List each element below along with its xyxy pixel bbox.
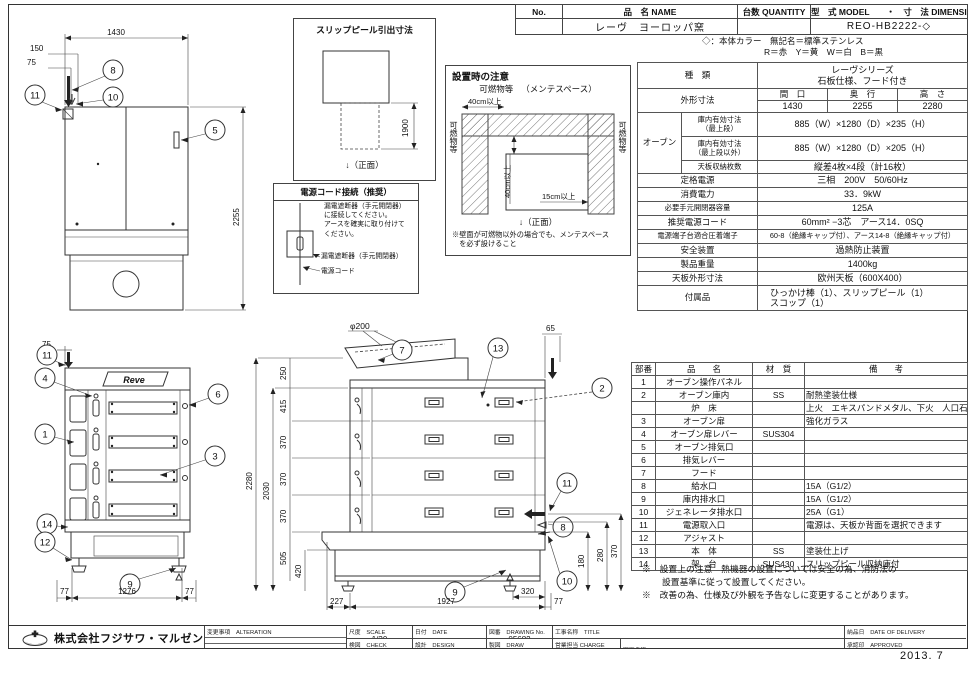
parts-cell-no: 3	[632, 415, 656, 428]
company-name: 株式会社フジサワ・マルゼン	[54, 630, 204, 646]
spec-accessories-v1: ひっかけ棒（1）、スリップピール（1）	[770, 288, 966, 298]
parts-row: 8給水口15A（G1/2）	[632, 480, 968, 493]
side-dim-420: 420	[294, 564, 303, 578]
parts-cell-name: アジャスト	[656, 532, 753, 545]
header-qty-label: 台数 QUANTITY	[738, 5, 811, 19]
parts-header-no: 部番	[632, 363, 656, 376]
spec-height-value: 2280	[898, 101, 968, 113]
side-dim-227: 227	[330, 597, 344, 606]
slip-peel-drawing: 1900	[294, 37, 437, 163]
drawing-name-label: 図面名称 DRAWING CORD	[621, 644, 698, 649]
parts-row: 1オーブン操作パネル	[632, 376, 968, 389]
front-callout-4: 4	[42, 374, 47, 385]
side-dim-r280: 280	[596, 548, 605, 562]
side-dim-370a: 370	[279, 435, 288, 449]
spec-accessories-v2: スコップ（1）	[770, 298, 966, 308]
parts-cell-material	[753, 506, 805, 519]
footnote-line2: 設置基準に従って設置してください。	[642, 576, 914, 589]
plan-dim-75: 75	[27, 58, 36, 67]
side-callout-13: 13	[493, 344, 504, 355]
delivery-cell: 納品日 DATE OF DELIVERY	[844, 626, 966, 638]
front-callout-1: 1	[42, 430, 47, 441]
power-t3: アースを確実に取り付けて	[324, 220, 406, 229]
spec-oven-label: オーブン	[638, 113, 682, 174]
spec-terminal-label: 電源端子台適合圧着端子	[638, 230, 758, 244]
parts-cell-name: 排気レバー	[656, 454, 753, 467]
spec-kind-label: 種 類	[638, 63, 758, 89]
side-dim-r370: 370	[610, 544, 619, 558]
parts-cell-no: 10	[632, 506, 656, 519]
spec-traysize-label: 天板外形寸法	[638, 272, 758, 286]
install-right-label: 可燃物等	[617, 121, 628, 153]
parts-cell-material	[753, 480, 805, 493]
approved-label: 承認印 APPROVED	[845, 639, 966, 649]
parts-row: 9庫内排水口15A（G1/2）	[632, 493, 968, 506]
parts-header-material: 材 質	[753, 363, 805, 376]
install-fn1: ※壁面が可燃物以外の場合でも、メンテスペース	[452, 230, 609, 239]
power-t2: に接続してください。	[324, 211, 406, 220]
parts-cell-note	[805, 454, 968, 467]
spec-depth-value: 2255	[828, 101, 898, 113]
header-name-label: 品 名 NAME	[563, 5, 738, 19]
slip-peel-dim: 1900	[401, 119, 410, 137]
spec-height-header: 高 さ	[898, 89, 968, 101]
parts-cell-note: 強化ガラス	[805, 415, 968, 428]
company-logo-icon	[20, 629, 50, 647]
install-front-label: ↓（正面）	[446, 216, 630, 228]
side-dim-250: 250	[279, 366, 288, 380]
color-legend-line1: ◇：本体カラー 無記名＝標準ステンレス	[702, 36, 883, 47]
side-callout-11: 11	[562, 479, 572, 490]
header-no-label: No.	[516, 5, 563, 19]
side-dim-370b: 370	[279, 472, 288, 486]
parts-table: 部番 品 名 材 質 備 考 1オーブン操作パネル2オーブン庫内SS耐熱塗装仕様…	[631, 362, 968, 571]
parts-cell-material	[753, 454, 805, 467]
side-dim-phi200: φ200	[350, 321, 370, 331]
draw-label: 製図 DRAW	[487, 639, 552, 649]
parts-cell-note: 25A（G1）	[805, 506, 968, 519]
front-view: 75 Reve 11 4	[8, 330, 238, 630]
parts-cell-material	[753, 441, 805, 454]
parts-cell-material	[753, 467, 805, 480]
install-top-clearance: 40cm以上	[468, 97, 502, 106]
parts-cell-name: フード	[656, 467, 753, 480]
parts-cell-note: 15A（G1/2）	[805, 493, 968, 506]
parts-cell-no: 1	[632, 376, 656, 389]
draw-cell: 製図 DRAW	[486, 638, 552, 649]
install-left-label: 可燃物等	[448, 121, 459, 153]
parts-cell-name: 炉 床	[656, 402, 753, 415]
footnote-line3: ※ 改善の為、仕様及び外観を予告なしに変更することがあります。	[642, 589, 914, 602]
parts-row: 6排気レバー	[632, 454, 968, 467]
parts-cell-no: 9	[632, 493, 656, 506]
spec-width-value: 1430	[758, 101, 828, 113]
parts-cell-material: SS	[753, 545, 805, 558]
plan-callout-10: 10	[108, 93, 119, 104]
slip-peel-front-label: ↓（正面）	[294, 159, 435, 171]
plan-dim-150: 150	[30, 44, 44, 53]
plan-callout-8: 8	[110, 66, 115, 77]
parts-cell-name: 庫内排水口	[656, 493, 753, 506]
parts-cell-name: オーブン扉	[656, 415, 753, 428]
parts-cell-material	[753, 415, 805, 428]
spec-power-label: 定格電源	[638, 174, 758, 188]
spec-kind-v1: レーヴシリーズ	[759, 65, 966, 75]
header-name-value: レーヴ ヨーロッパ窯	[563, 19, 738, 35]
front-callout-12: 12	[40, 538, 51, 549]
parts-cell-name: オーブン操作パネル	[656, 376, 753, 389]
spec-breaker-label: 必要手元開閉器容量	[638, 202, 758, 216]
spec-consumption-label: 消費電力	[638, 188, 758, 202]
parts-cell-note	[805, 428, 968, 441]
parts-cell-no: 13	[632, 545, 656, 558]
spec-power-value: 三相 200V 50/60Hz	[758, 174, 968, 188]
alteration-label: 変更事項 ALTERATION	[205, 626, 346, 636]
parts-cell-no: 7	[632, 467, 656, 480]
side-callout-7: 7	[399, 346, 404, 357]
footnote-line1: ※ 設置上の注意 熱機器の設置については安全の為、消防法の	[642, 563, 914, 576]
slip-peel-title: スリップピール引出寸法	[294, 19, 435, 36]
parts-row: 2オーブン庫内SS耐熱塗装仕様	[632, 389, 968, 402]
front-callout-6: 6	[215, 390, 220, 401]
parts-cell-material	[753, 493, 805, 506]
parts-cell-no	[632, 402, 656, 415]
header-model-value: REO-HB2222-◇	[811, 19, 968, 35]
install-drawing: 40cm以上 40cm以上 15cm以上	[446, 94, 630, 216]
drawing-sheet: No. 品 名 NAME 台数 QUANTITY 型 式 MODEL ・ 寸 法…	[0, 0, 975, 692]
color-legend-line2: R＝赤 Y＝黄 W＝白 B＝黒	[702, 47, 883, 58]
parts-cell-name: 本 体	[656, 545, 753, 558]
side-dim-1927: 1927	[437, 597, 455, 606]
spec-accessories-label: 付属品	[638, 286, 758, 311]
power-breaker-label: 漏電遮断器（手元開閉器）	[321, 250, 403, 260]
parts-cell-note	[805, 376, 968, 389]
parts-cell-name: オーブン庫内	[656, 389, 753, 402]
plan-callout-11: 11	[30, 91, 40, 102]
parts-cell-no: 8	[632, 480, 656, 493]
drawing-name-cell: 図面名称 DRAWING CORD レーヴ ヨーロッパ窯	[620, 638, 844, 649]
header-table: No. 品 名 NAME 台数 QUANTITY 型 式 MODEL ・ 寸 法…	[515, 4, 968, 35]
spec-inner1-l2: （最上段）	[683, 125, 756, 133]
parts-cell-note: 電源は、天板か背面を選択できます	[805, 519, 968, 532]
spec-inner1-label: 庫内有効寸法 （最上段）	[682, 113, 758, 137]
design-label: 設計 DESIGN	[413, 639, 486, 649]
parts-cell-note	[805, 532, 968, 545]
spec-trays-label: 天板収納枚数	[682, 161, 758, 174]
check-cell: 検図 CHECK	[346, 638, 412, 649]
front-logo: Reve	[123, 375, 145, 385]
parts-cell-no: 5	[632, 441, 656, 454]
scale-cell: 尺度 SCALE 1/30	[346, 626, 412, 638]
front-callout-14: 14	[42, 520, 53, 531]
spec-inner2-l2: （最上段以外）	[683, 149, 756, 157]
parts-cell-no: 4	[632, 428, 656, 441]
side-dim-65: 65	[546, 324, 555, 333]
spec-kind-value: レーヴシリーズ 石板仕様、フード付き	[758, 63, 968, 89]
parts-cell-name: ジェネレータ排水口	[656, 506, 753, 519]
parts-row: 7フード	[632, 467, 968, 480]
date-stamp: 2013. 7	[900, 650, 944, 662]
parts-header-name: 品 名	[656, 363, 753, 376]
parts-row: 11電源取入口電源は、天板か背面を選択できます	[632, 519, 968, 532]
side-dim-2030: 2030	[262, 482, 271, 500]
company-logo: 株式会社フジサワ・マルゼン	[20, 629, 204, 647]
parts-cell-note: 耐熱塗装仕様	[805, 389, 968, 402]
side-view: φ200 22	[230, 318, 632, 652]
side-dim-370c: 370	[279, 509, 288, 523]
design-cell: 設計 DESIGN	[412, 638, 486, 649]
parts-row: 3オーブン扉強化ガラス	[632, 415, 968, 428]
approved-cell: 承認印 APPROVED	[844, 638, 966, 649]
install-back-clearance: 40cm以上	[503, 164, 512, 198]
spec-terminal-value: 60-8（絶縁キャップ付）、アース14-8（絶縁キャップ付）	[758, 230, 968, 244]
spec-breaker-value: 125A	[758, 202, 968, 216]
parts-cell-no: 12	[632, 532, 656, 545]
parts-row: 13本 体SS塗装仕上げ	[632, 545, 968, 558]
parts-cell-name: オーブン排気口	[656, 441, 753, 454]
color-legend: ◇：本体カラー 無記名＝標準ステンレス R＝赤 Y＝黄 W＝白 B＝黒	[702, 36, 883, 59]
title-cell: 工事名称 TITLE	[552, 626, 844, 638]
parts-cell-name: 電源取入口	[656, 519, 753, 532]
parts-row: 10ジェネレータ排水口25A（G1）	[632, 506, 968, 519]
spec-inner1-value: 885（W）×1280（D）×235（H）	[758, 113, 968, 137]
parts-cell-material	[753, 532, 805, 545]
spec-width-header: 間 口	[758, 89, 828, 101]
parts-cell-no: 2	[632, 389, 656, 402]
power-cord-label: 電源コード	[321, 265, 355, 275]
power-t4: ください。	[324, 230, 406, 239]
header-model-label: 型 式 MODEL ・ 寸 法 DIMENSION	[811, 5, 968, 19]
parts-cell-note: 塗装仕上げ	[805, 545, 968, 558]
front-dim-1276: 1276	[118, 587, 136, 596]
parts-cell-note	[805, 441, 968, 454]
parts-row: 12アジャスト	[632, 532, 968, 545]
side-dim-320: 320	[521, 587, 535, 596]
parts-row: 5オーブン排気口	[632, 441, 968, 454]
parts-table-body: 1オーブン操作パネル2オーブン庫内SS耐熱塗装仕様炉 床上火 エキスパンドメタル…	[632, 376, 968, 571]
spec-table: 種 類 レーヴシリーズ 石板仕様、フード付き 外形寸法 間 口 奥 行 高 さ …	[637, 62, 968, 311]
front-dim-77l: 77	[60, 587, 69, 596]
spec-safety-value: 過熱防止装置	[758, 244, 968, 258]
side-dim-415: 415	[279, 399, 288, 413]
spec-inner2-value: 885（W）×1280（D）×205（H）	[758, 137, 968, 161]
parts-cell-name: 給水口	[656, 480, 753, 493]
parts-cell-no: 11	[632, 519, 656, 532]
delivery-label: 納品日 DATE OF DELIVERY	[845, 626, 966, 636]
plan-dim-2255: 2255	[232, 208, 241, 226]
spec-weight-value: 1400kg	[758, 258, 968, 272]
charge-cell: 営業担当 CHARGE	[552, 638, 620, 649]
check-label: 検図 CHECK	[347, 639, 412, 649]
power-drawing	[276, 199, 324, 291]
charge-label: 営業担当 CHARGE	[553, 639, 620, 649]
install-notice-box: 設置時の注意 可燃物等 （メンテスペース） 40cm以上 40cm以上 15cm…	[445, 65, 631, 256]
spec-kind-v2: 石板仕様、フード付き	[759, 76, 966, 86]
install-side-clearance: 15cm以上	[542, 192, 576, 201]
spec-traysize-value: 欧州天板（600X400）	[758, 272, 968, 286]
spec-cord-label: 推奨電源コード	[638, 216, 758, 230]
parts-cell-material: SS	[753, 389, 805, 402]
spec-trays-value: 縦差4枚×4段（計16枚）	[758, 161, 968, 174]
parts-cell-name: オーブン扉レバー	[656, 428, 753, 441]
side-callout-2: 2	[599, 384, 604, 395]
install-title: 設置時の注意	[446, 66, 630, 83]
title-label: 工事名称 TITLE	[553, 626, 844, 636]
spec-safety-label: 安全装置	[638, 244, 758, 258]
plan-callout-5: 5	[212, 126, 217, 137]
power-cord-box: 電源コード接続（推奨） 漏電遮断器（手元開閉器） に接続してください。 アースを…	[273, 183, 419, 294]
front-callout-11: 11	[42, 351, 52, 362]
side-dim-2280: 2280	[245, 472, 254, 490]
spec-cord-value: 60mm² −3芯 アース14．0SQ	[758, 216, 968, 230]
install-fn2: を必ず設けること	[452, 239, 609, 248]
side-dim-505: 505	[279, 551, 288, 565]
parts-row: 炉 床上火 エキスパンドメタル、下火 人口石ボード	[632, 402, 968, 415]
header-qty-value	[738, 19, 811, 35]
side-callout-10: 10	[562, 577, 573, 588]
parts-cell-note: 上火 エキスパンドメタル、下火 人口石ボード	[805, 402, 968, 415]
parts-cell-no: 6	[632, 454, 656, 467]
front-callout-3: 3	[212, 452, 217, 463]
spec-inner2-label: 庫内有効寸法 （最上段以外）	[682, 137, 758, 161]
parts-cell-material: SUS304	[753, 428, 805, 441]
parts-cell-note	[805, 467, 968, 480]
plan-view: 1430 150 75 2255 8 10 11 5	[8, 14, 258, 326]
power-t1: 漏電遮断器（手元開閉器）	[324, 202, 406, 211]
parts-header-note: 備 考	[805, 363, 968, 376]
parts-cell-material	[753, 402, 805, 415]
parts-cell-material	[753, 376, 805, 389]
side-dim-r180: 180	[577, 554, 586, 568]
plan-dim-1430: 1430	[107, 28, 125, 37]
drawing-no-cell: 図番 DRAWING No. 05682	[486, 626, 552, 638]
date-cell: 日付 DATE ・ ・	[412, 626, 486, 638]
spec-accessories-value: ひっかけ棒（1）、スリップピール（1） スコップ（1）	[758, 286, 968, 311]
slip-peel-box: スリップピール引出寸法 1900 ↓（正面）	[293, 18, 436, 181]
side-dim-77: 77	[554, 597, 563, 606]
spec-consumption-value: 33．9kW	[758, 188, 968, 202]
spec-outer-label: 外形寸法	[638, 89, 758, 113]
parts-row: 4オーブン扉レバーSUS304	[632, 428, 968, 441]
header-no-value	[516, 19, 563, 35]
spec-weight-label: 製品重量	[638, 258, 758, 272]
footnotes: ※ 設置上の注意 熱機器の設置については安全の為、消防法の 設置基準に従って設置…	[642, 563, 914, 601]
front-dim-77r: 77	[185, 587, 194, 596]
parts-cell-note: 15A（G1/2）	[805, 480, 968, 493]
alteration-cell: 変更事項 ALTERATION	[204, 626, 346, 648]
parts-cell-material	[753, 519, 805, 532]
spec-depth-header: 奥 行	[828, 89, 898, 101]
